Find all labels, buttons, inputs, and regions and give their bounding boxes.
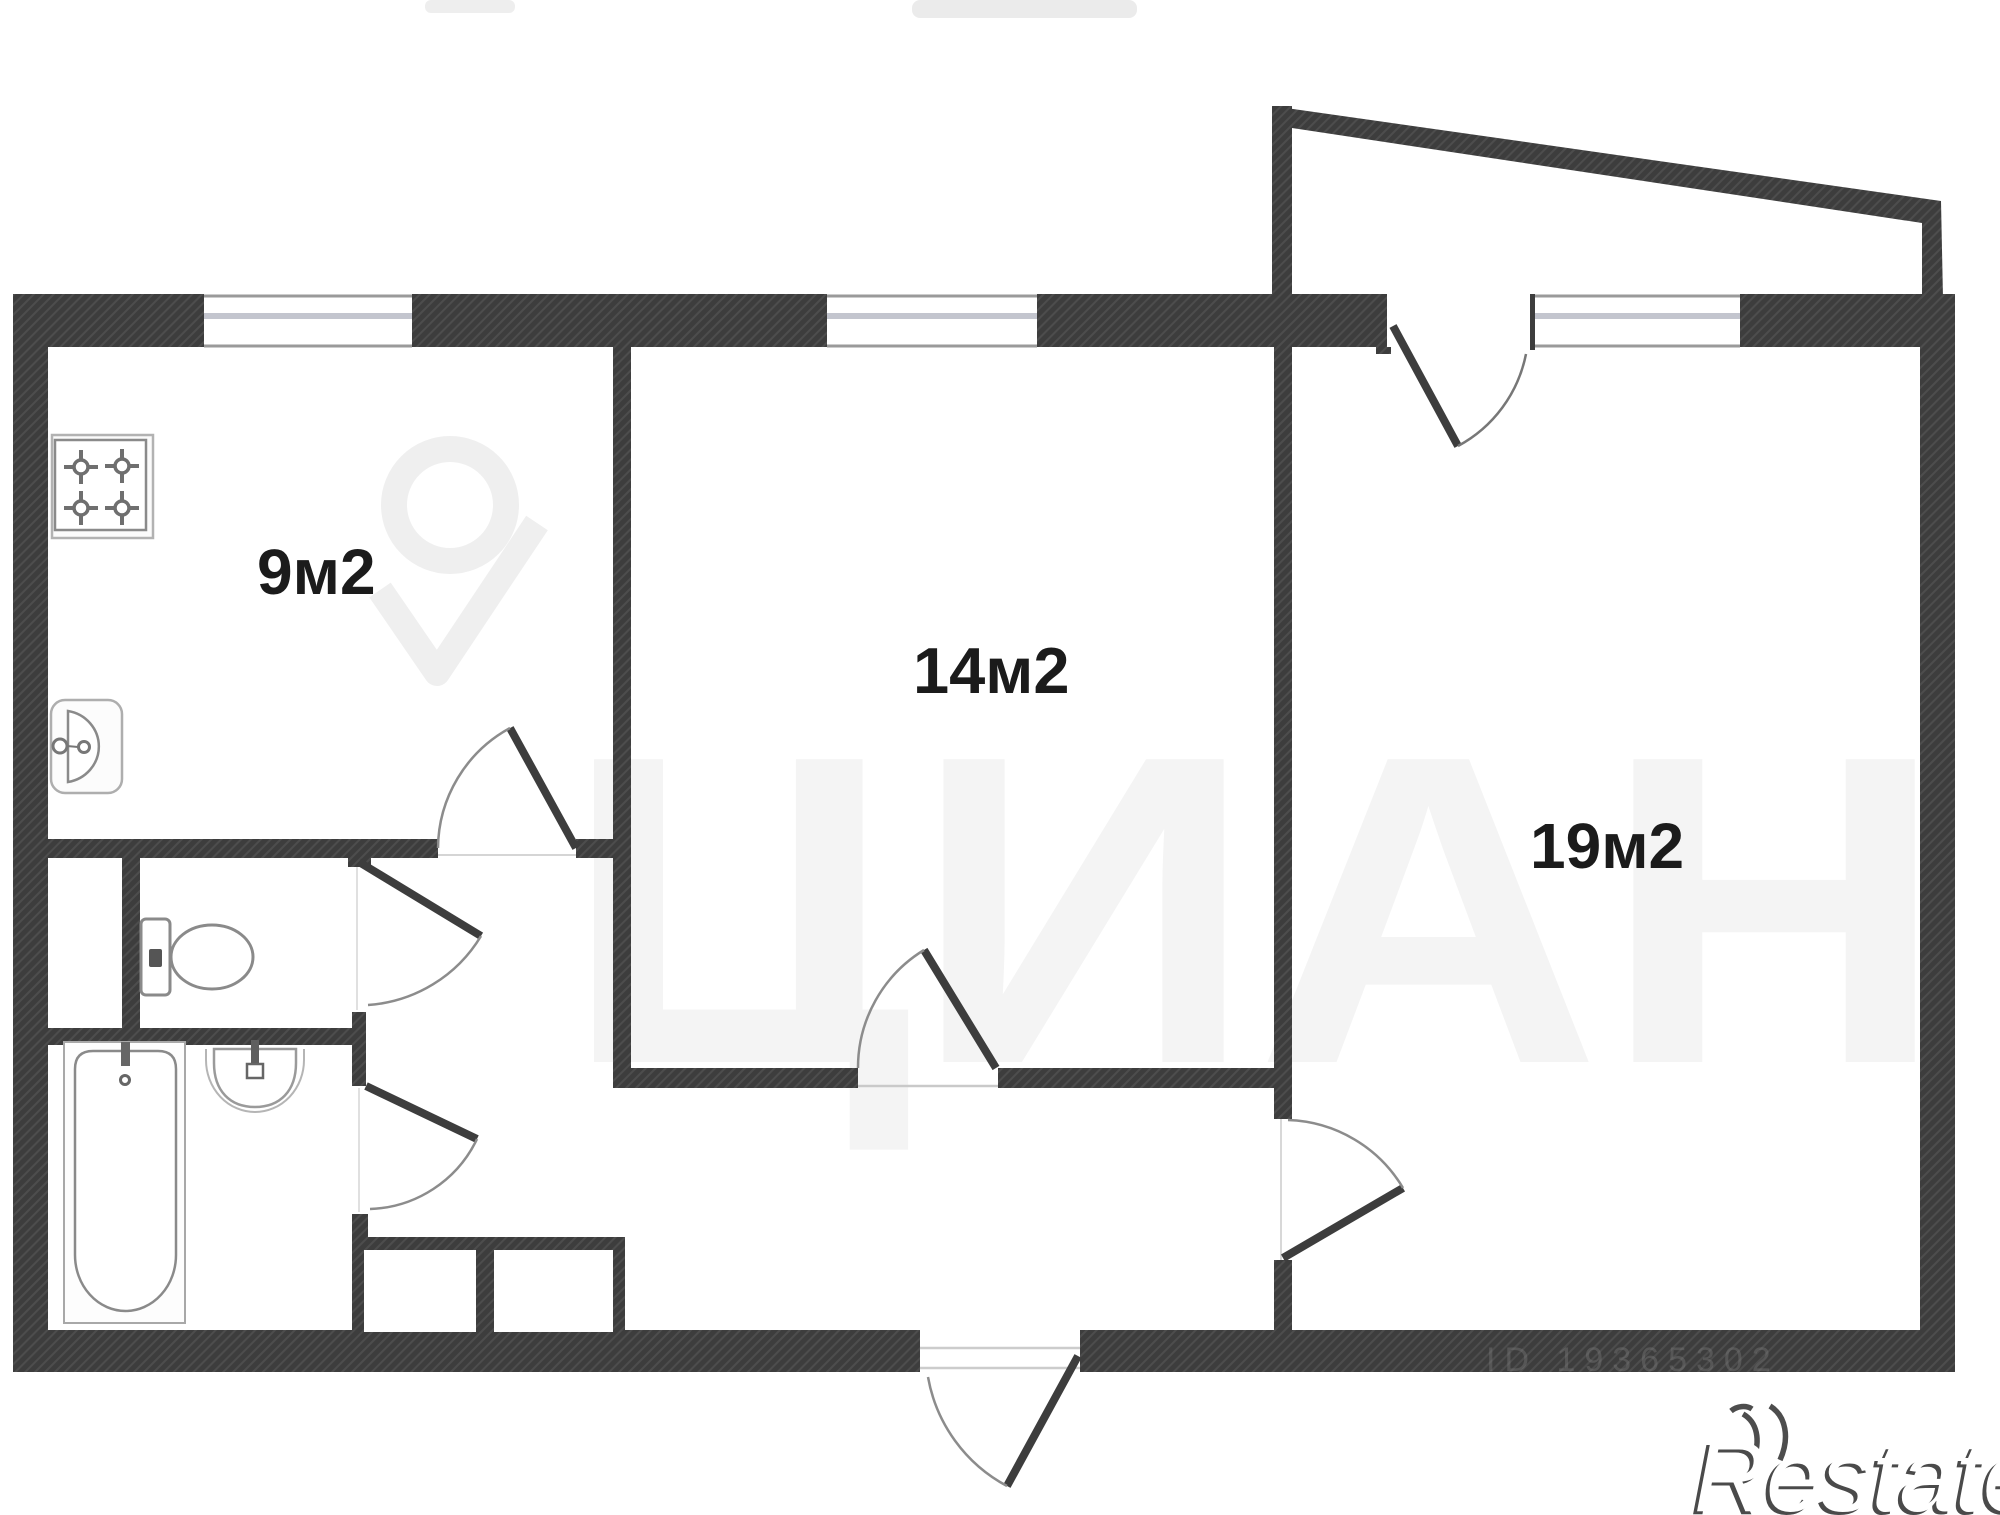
svg-text:9м2: 9м2 [257,536,376,608]
svg-text:14м2: 14м2 [913,634,1070,707]
svg-text:Restate: Restate [1694,1421,2000,1515]
svg-text:19м2: 19м2 [1530,810,1684,882]
svg-text:ID 19365302: ID 19365302 [1486,1341,1780,1379]
